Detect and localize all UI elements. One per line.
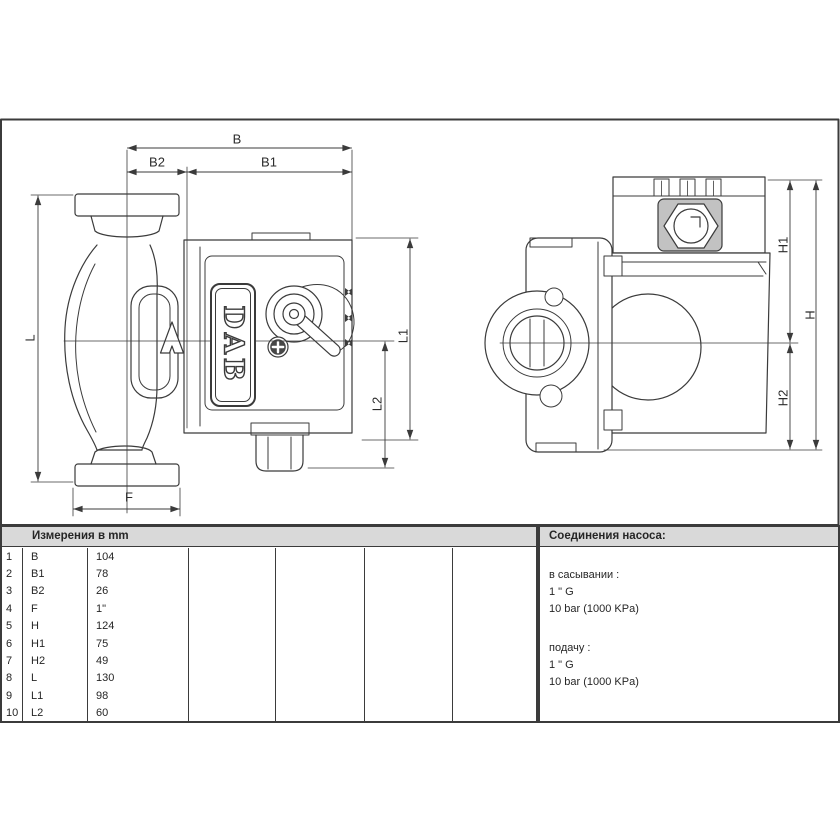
row-num: 8 <box>2 672 22 684</box>
dim-label-l: L <box>23 334 38 341</box>
dim-label-b: B <box>233 132 242 147</box>
selector-marks-icon <box>345 288 353 347</box>
dim-value: 124 <box>87 620 188 632</box>
dim-name: H <box>22 620 87 632</box>
dim-name: L1 <box>22 690 87 702</box>
dim-name: B1 <box>22 568 87 580</box>
row-num: 6 <box>2 638 22 650</box>
dim-label-l1: L1 <box>396 329 411 343</box>
dim-value: 60 <box>87 707 188 719</box>
row-num: 4 <box>2 603 22 615</box>
row-num: 9 <box>2 690 22 702</box>
table-row: 6 H1 75 <box>2 635 536 652</box>
row-num: 10 <box>2 707 22 719</box>
flow-arrow-icon <box>161 322 184 353</box>
dim-name: F <box>22 603 87 615</box>
dim-label-h1: H1 <box>776 237 791 254</box>
table-row: 7 H2 49 <box>2 652 536 669</box>
connections-header: Соединения насоса: <box>540 527 838 547</box>
dim-name: L2 <box>22 707 87 719</box>
dim-name: H1 <box>22 638 87 650</box>
table-row: 9 L1 98 <box>2 687 536 704</box>
suction-size: 1 " G <box>549 584 838 601</box>
table-row: 1 B 104 <box>2 548 536 565</box>
brand-logo: DAB <box>218 305 249 384</box>
table-row: 4 F 1" <box>2 600 536 617</box>
row-num: 7 <box>2 655 22 667</box>
table-row: 5 H 124 <box>2 618 536 635</box>
pump-side-view <box>485 177 798 452</box>
delivery-pressure: 10 bar (1000 KPa) <box>549 674 838 691</box>
delivery-label: подачу : <box>549 640 838 657</box>
measurement-rows: 1 B 104 2 B1 78 3 B2 26 4 F 1" 5 H <box>2 548 536 721</box>
connections-panel: Соединения насоса: в сасывании : 1 " G 1… <box>538 525 840 723</box>
delivery-size: 1 " G <box>549 657 838 674</box>
dim-name: B2 <box>22 585 87 597</box>
table-row: 8 L 130 <box>2 670 536 687</box>
measurement-table-header: Измерения в mm <box>2 527 536 547</box>
dim-name: L <box>22 672 87 684</box>
screw-icon <box>268 337 288 357</box>
suction-label: в сасывании : <box>549 567 838 584</box>
dim-label-h2: H2 <box>776 390 791 407</box>
connections-body: в сасывании : 1 " G 10 bar (1000 KPa) по… <box>540 547 838 691</box>
dim-value: 104 <box>87 551 188 563</box>
dim-label-f: F <box>125 490 133 505</box>
dim-label-h: H <box>803 310 818 319</box>
spacer <box>549 618 838 640</box>
dim-value: 49 <box>87 655 188 667</box>
table-row: 3 B2 26 <box>2 583 536 600</box>
dim-name: H2 <box>22 655 87 667</box>
datasheet: B B2 B1 L F L1 L2 H1 H H2 DAB Измерения … <box>0 0 840 840</box>
dim-value: 1" <box>87 603 188 615</box>
dim-name: B <box>22 551 87 563</box>
table-row: 10 L2 60 <box>2 705 536 722</box>
row-num: 3 <box>2 585 22 597</box>
brand-plate: DAB <box>210 283 256 407</box>
dim-value: 75 <box>87 638 188 650</box>
dim-value: 130 <box>87 672 188 684</box>
suction-pressure: 10 bar (1000 KPa) <box>549 601 838 618</box>
row-num: 1 <box>2 551 22 563</box>
row-num: 2 <box>2 568 22 580</box>
dim-value: 78 <box>87 568 188 580</box>
row-num: 5 <box>2 620 22 632</box>
hex-gland-icon <box>658 199 722 251</box>
dim-value: 98 <box>87 690 188 702</box>
measurement-table: Измерения в mm 1 B 104 2 B1 78 3 B2 26 <box>0 525 538 723</box>
table-row: 2 B1 78 <box>2 565 536 582</box>
dim-label-b1: B1 <box>261 155 277 170</box>
dim-value: 26 <box>87 585 188 597</box>
dim-label-l2: L2 <box>370 397 385 411</box>
dim-label-b2: B2 <box>149 155 165 170</box>
